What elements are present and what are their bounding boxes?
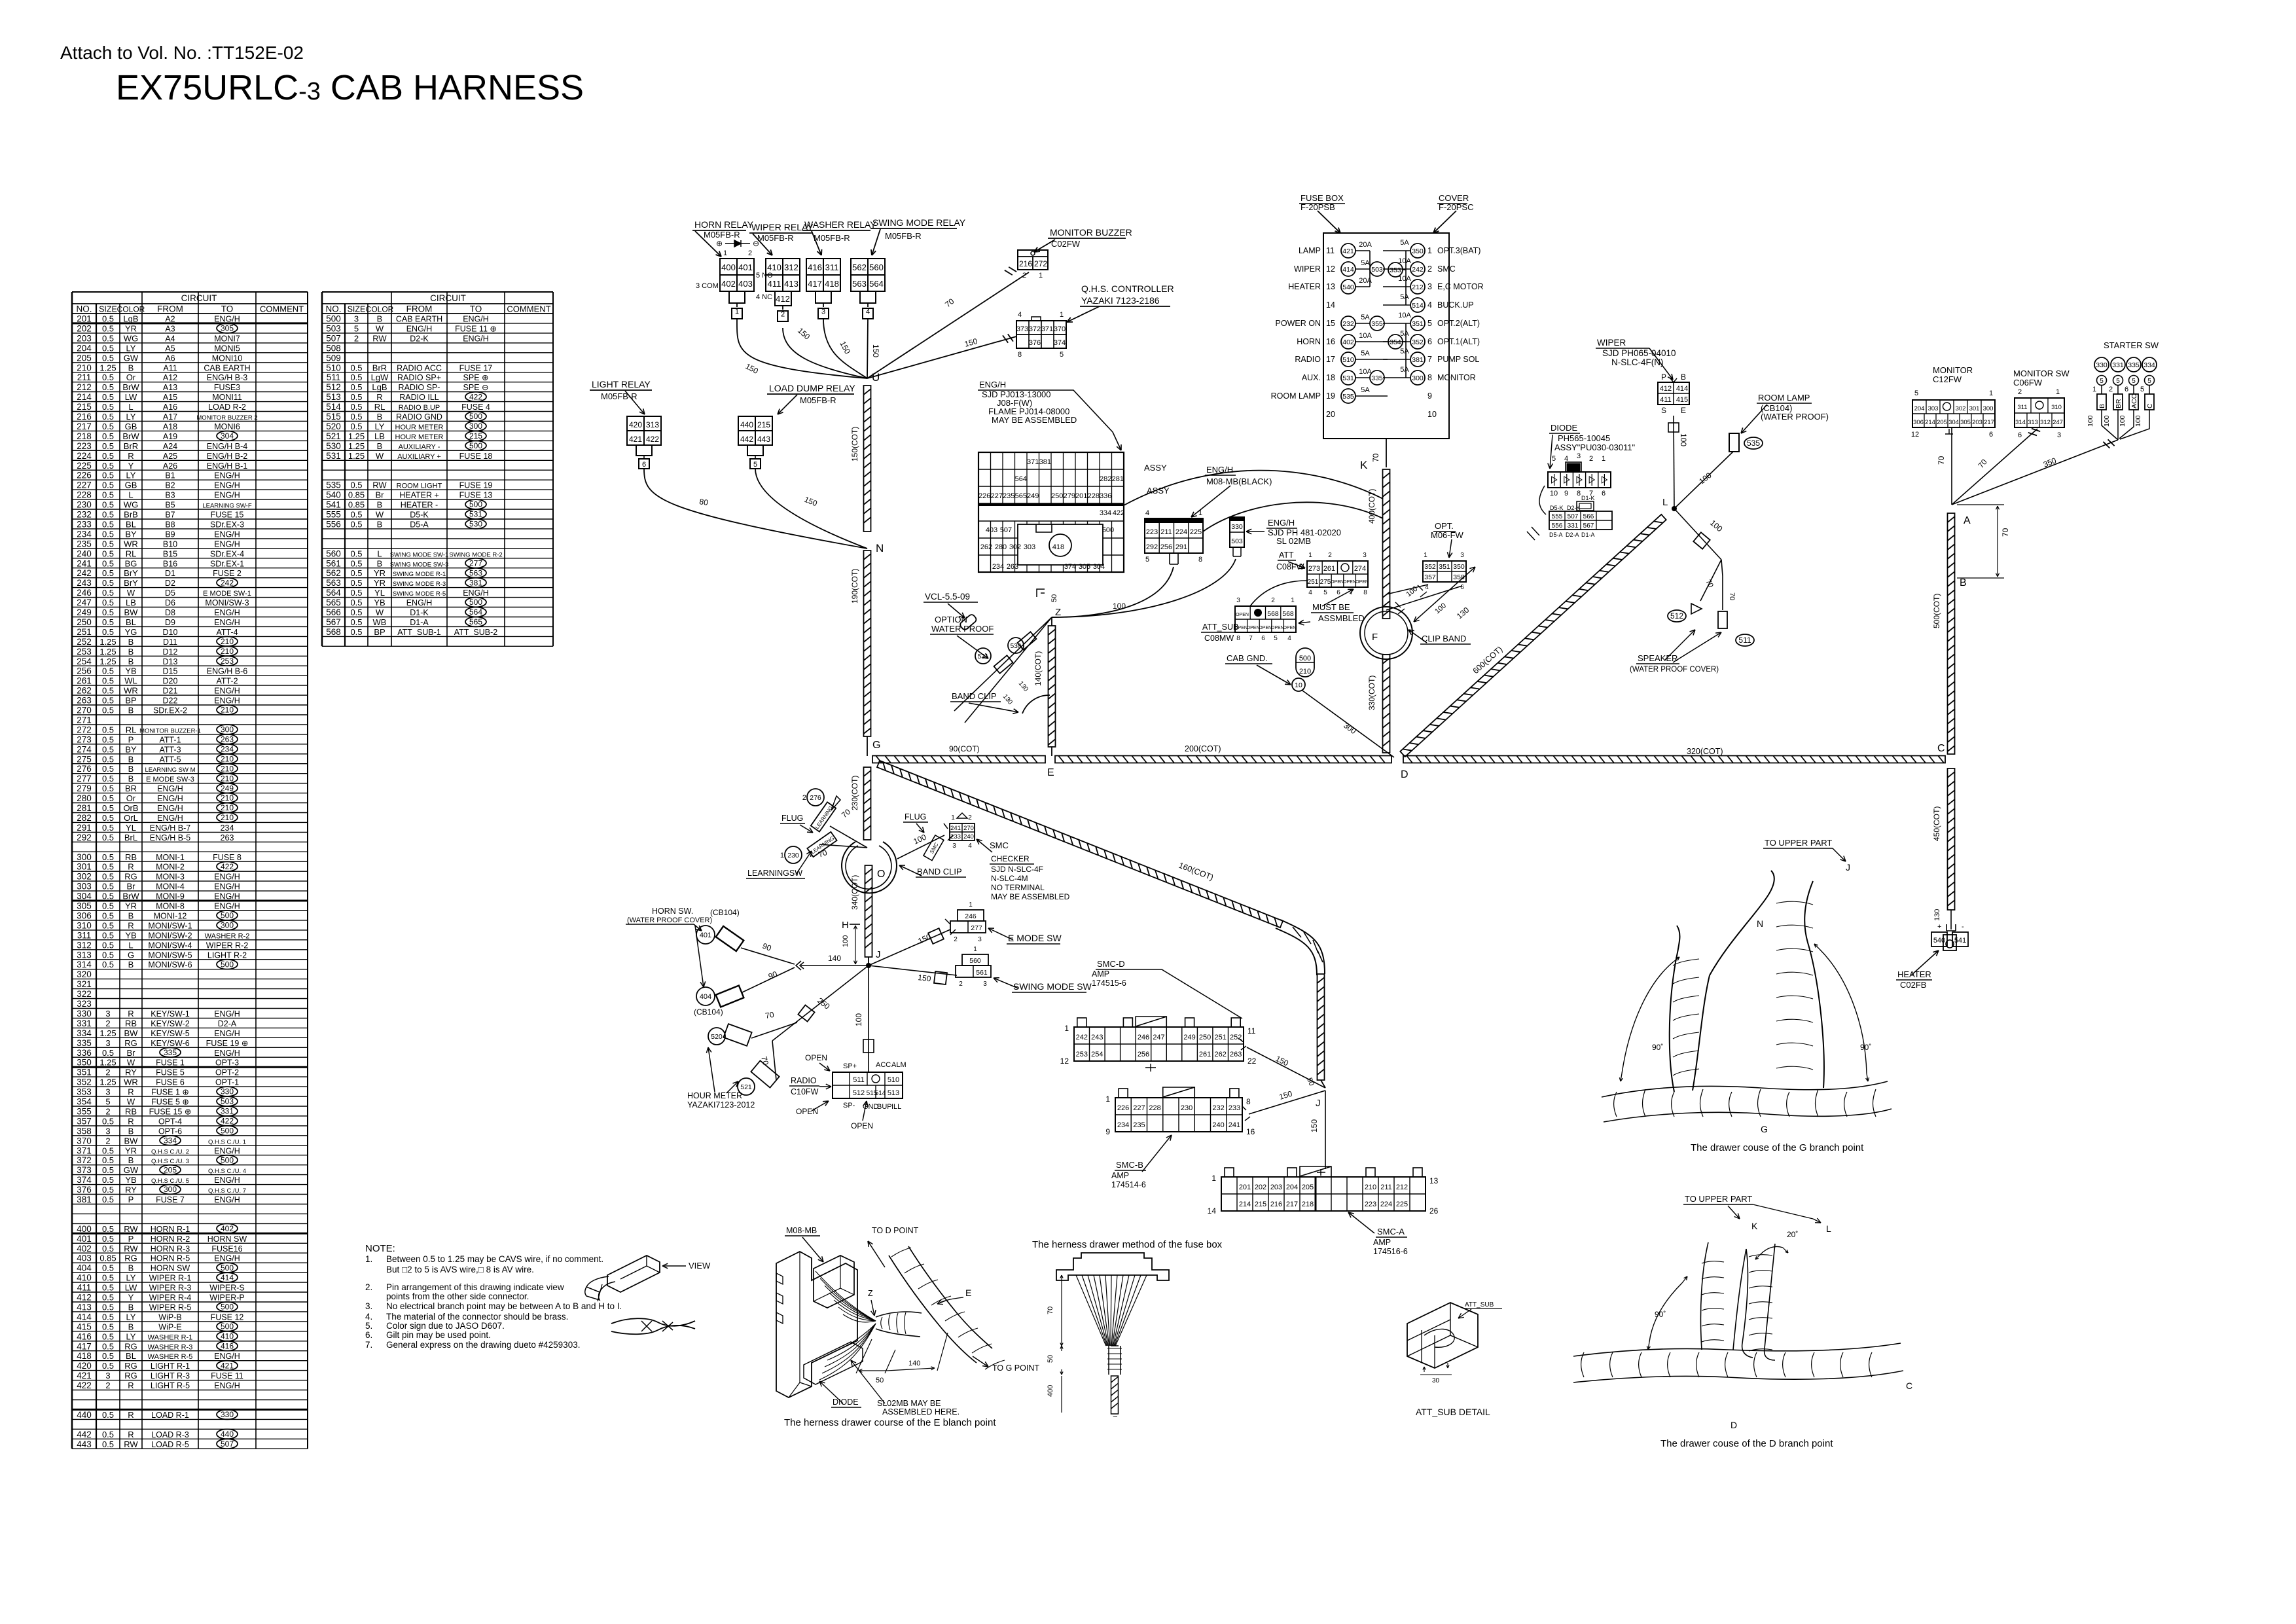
svg-text:2: 2 — [968, 814, 972, 821]
svg-text:C10FW: C10FW — [791, 1087, 819, 1096]
svg-text:WR: WR — [124, 539, 138, 549]
svg-text:ENG/H B-4: ENG/H B-4 — [207, 442, 248, 451]
svg-text:230: 230 — [77, 500, 92, 510]
svg-text:D6: D6 — [165, 598, 175, 607]
svg-text:263: 263 — [221, 735, 234, 744]
svg-text:503: 503 — [221, 1097, 234, 1106]
svg-text:LY: LY — [126, 471, 136, 480]
svg-text:ENG/H: ENG/H — [214, 892, 240, 901]
svg-text:YAZAKI7123-2012: YAZAKI7123-2012 — [687, 1100, 755, 1110]
svg-text:242: 242 — [77, 568, 92, 578]
svg-text:520: 520 — [711, 1033, 723, 1041]
svg-text:331: 331 — [221, 1107, 234, 1116]
svg-text:355: 355 — [1371, 320, 1383, 328]
svg-text:302: 302 — [1956, 405, 1966, 412]
svg-text:N: N — [876, 542, 884, 554]
svg-text:RB: RB — [125, 852, 137, 862]
svg-text:271: 271 — [77, 715, 92, 725]
svg-text:FUSE 13: FUSE 13 — [459, 491, 493, 500]
svg-text:421: 421 — [629, 435, 642, 444]
svg-text:MONITOR BUZZER 2: MONITOR BUZZER 2 — [196, 414, 257, 422]
svg-text:WiP-E: WiP-E — [158, 1322, 181, 1331]
svg-text:402: 402 — [721, 279, 736, 289]
svg-text:J: J — [876, 949, 881, 960]
svg-text:RADIO SP-: RADIO SP- — [399, 383, 440, 392]
svg-text:J: J — [1316, 1098, 1321, 1109]
svg-text:D15: D15 — [163, 667, 178, 676]
svg-text:400: 400 — [1047, 1385, 1054, 1397]
svg-text:RW: RW — [124, 1439, 138, 1449]
svg-text:281: 281 — [77, 803, 92, 813]
svg-text:WATER PROOF: WATER PROOF — [931, 624, 994, 634]
svg-text:253: 253 — [221, 657, 234, 666]
svg-text:564: 564 — [326, 588, 341, 598]
svg-text:K: K — [1751, 1221, 1758, 1231]
svg-text:5: 5 — [354, 323, 359, 333]
svg-text:B16: B16 — [163, 559, 177, 568]
svg-text:0.5: 0.5 — [350, 402, 362, 412]
svg-text:R: R — [128, 451, 134, 461]
svg-text:568: 568 — [326, 627, 341, 637]
svg-text:0.5: 0.5 — [350, 363, 362, 372]
svg-text:22: 22 — [1247, 1056, 1257, 1066]
svg-text:LIGHT R-1: LIGHT R-1 — [151, 1362, 190, 1371]
svg-text:LEARNINGSW: LEARNINGSW — [747, 869, 802, 878]
svg-text:100: 100 — [2087, 415, 2094, 427]
svg-text:SWING MODE R-2: SWING MODE R-2 — [449, 551, 502, 558]
svg-text:0.5: 0.5 — [102, 461, 114, 471]
svg-text:ENG/H: ENG/H — [463, 315, 489, 324]
svg-text:374: 374 — [1054, 339, 1066, 347]
svg-text:323: 323 — [77, 999, 92, 1009]
svg-text:1.25: 1.25 — [99, 647, 116, 657]
svg-text:0.5: 0.5 — [102, 882, 114, 892]
svg-text:3: 3 — [354, 314, 359, 324]
svg-text:205: 205 — [1937, 419, 1947, 426]
svg-text:410: 410 — [767, 262, 781, 272]
svg-text:G: G — [872, 740, 880, 751]
svg-text:440: 440 — [221, 1430, 234, 1439]
svg-text:9: 9 — [1105, 1127, 1110, 1136]
svg-text:507: 507 — [1568, 513, 1579, 520]
svg-text:8: 8 — [1427, 373, 1432, 382]
svg-text:2.: 2. — [365, 1282, 372, 1292]
svg-text:A15: A15 — [163, 393, 177, 402]
svg-text:371: 371 — [77, 1146, 92, 1155]
svg-text:242: 242 — [1412, 266, 1424, 274]
svg-text:214: 214 — [1925, 419, 1935, 426]
svg-text:C08MW: C08MW — [1204, 634, 1234, 643]
svg-text:500: 500 — [221, 911, 234, 920]
svg-text:200(COT): 200(COT) — [1185, 744, 1221, 753]
svg-text:420: 420 — [77, 1361, 92, 1371]
svg-text:MONI10: MONI10 — [212, 353, 243, 363]
svg-text:0.5: 0.5 — [102, 734, 114, 744]
svg-text:2: 2 — [105, 1380, 110, 1390]
svg-text:500: 500 — [469, 412, 482, 421]
svg-text:C08FW: C08FW — [1276, 562, 1304, 571]
svg-text:0.5: 0.5 — [350, 392, 362, 402]
svg-text:FUSE 2: FUSE 2 — [213, 569, 242, 578]
svg-text:ENG/H: ENG/H — [214, 1049, 240, 1058]
svg-text:12: 12 — [1326, 264, 1335, 274]
svg-text:ATT-1: ATT-1 — [159, 735, 181, 744]
svg-text:313: 313 — [2028, 419, 2038, 426]
svg-text:274: 274 — [77, 744, 92, 754]
svg-text:(CB104): (CB104) — [694, 1007, 723, 1017]
svg-text:228: 228 — [77, 490, 92, 500]
svg-text:FUSE BOX: FUSE BOX — [1300, 193, 1344, 203]
svg-text:535: 535 — [1747, 439, 1760, 448]
svg-text:SP+: SP+ — [843, 1062, 857, 1070]
svg-text:OPT-6: OPT-6 — [158, 1127, 182, 1136]
svg-text:WR: WR — [124, 1077, 138, 1087]
svg-text:FUSE 1 ⊕: FUSE 1 ⊕ — [151, 1088, 189, 1097]
svg-text:Q.H.S C./U. 7: Q.H.S C./U. 7 — [208, 1187, 246, 1195]
svg-text:251: 251 — [77, 627, 92, 637]
svg-text:YG: YG — [125, 627, 137, 637]
svg-text:414: 414 — [1676, 385, 1688, 393]
svg-text:D13: D13 — [163, 657, 178, 666]
svg-text:376: 376 — [77, 1185, 92, 1195]
svg-text:254: 254 — [1091, 1051, 1103, 1058]
svg-text:B10: B10 — [163, 539, 177, 549]
svg-text:HORN R-1: HORN R-1 — [151, 1225, 190, 1234]
svg-text:RW: RW — [124, 1224, 138, 1234]
svg-text:SDr.EX-3: SDr.EX-3 — [210, 520, 244, 530]
svg-text:1: 1 — [1105, 1094, 1110, 1104]
svg-text:330: 330 — [77, 1009, 92, 1019]
svg-text:509: 509 — [326, 353, 341, 363]
svg-text:ENG/H: ENG/H — [214, 530, 240, 539]
svg-text:0.85: 0.85 — [348, 500, 365, 510]
svg-text:2: 2 — [105, 1107, 110, 1117]
svg-text:0.5: 0.5 — [102, 549, 114, 558]
svg-text:0.5: 0.5 — [102, 588, 114, 598]
svg-text:350: 350 — [1453, 563, 1465, 571]
svg-text:LOAD R-5: LOAD R-5 — [151, 1440, 189, 1449]
svg-text:305: 305 — [77, 901, 92, 911]
svg-text:0.5: 0.5 — [102, 520, 114, 530]
svg-text:312: 312 — [784, 262, 798, 272]
svg-text:417: 417 — [808, 279, 822, 289]
svg-text:100: 100 — [1113, 602, 1126, 611]
svg-text:280: 280 — [77, 793, 92, 803]
svg-text:234: 234 — [77, 529, 92, 539]
svg-text:5A: 5A — [1400, 348, 1409, 355]
svg-text:247: 247 — [2053, 419, 2063, 426]
svg-text:WR: WR — [124, 686, 138, 696]
svg-text:E MODE SW-3: E MODE SW-3 — [146, 776, 194, 784]
svg-text:224: 224 — [1380, 1200, 1392, 1208]
svg-text:RG: RG — [124, 1371, 137, 1380]
svg-text:ENG/H B-7: ENG/H B-7 — [150, 823, 191, 833]
svg-text:3: 3 — [1460, 552, 1464, 559]
svg-text:203: 203 — [1270, 1183, 1282, 1191]
svg-text:70: 70 — [1728, 592, 1736, 600]
svg-text:R: R — [376, 392, 382, 402]
svg-text:240: 240 — [963, 833, 974, 840]
svg-text:564: 564 — [869, 279, 884, 289]
svg-text:211: 211 — [1380, 1183, 1392, 1191]
svg-text:D: D — [1401, 769, 1408, 780]
svg-text:250: 250 — [1199, 1034, 1211, 1041]
svg-text:SMC-A: SMC-A — [1377, 1227, 1405, 1236]
svg-text:70: 70 — [2001, 528, 2010, 537]
svg-text:4: 4 — [1427, 300, 1432, 310]
svg-text:1.25: 1.25 — [99, 363, 116, 372]
svg-text:STARTER SW: STARTER SW — [2104, 340, 2159, 350]
svg-text:ENG/H: ENG/H — [214, 1146, 240, 1155]
svg-text:BY: BY — [125, 529, 137, 539]
svg-text:ENG/H: ENG/H — [157, 794, 183, 803]
svg-text:403: 403 — [986, 526, 997, 534]
svg-text:B: B — [377, 500, 383, 510]
svg-text:0.5: 0.5 — [102, 911, 114, 921]
svg-text:50: 50 — [876, 1377, 884, 1384]
svg-text:0.5: 0.5 — [102, 568, 114, 578]
svg-text:218: 218 — [1302, 1200, 1314, 1208]
svg-text:10: 10 — [1550, 490, 1558, 497]
svg-text:E: E — [965, 1288, 971, 1298]
svg-text:LY: LY — [126, 1312, 136, 1322]
svg-text:RADIO: RADIO — [1295, 355, 1321, 364]
svg-text:D5-A: D5-A — [410, 520, 429, 530]
svg-text:566: 566 — [326, 607, 341, 617]
svg-text:COMMENT: COMMENT — [507, 304, 550, 314]
svg-text:2: 2 — [748, 249, 752, 257]
svg-text:D1-A: D1-A — [1581, 532, 1595, 538]
svg-text:N: N — [1757, 918, 1763, 929]
svg-text:A2: A2 — [165, 315, 175, 324]
svg-text:0.5: 0.5 — [102, 1048, 114, 1058]
svg-text:B: B — [128, 647, 134, 657]
svg-text:305: 305 — [1079, 563, 1090, 571]
svg-text:4: 4 — [1018, 311, 1022, 319]
svg-text:8: 8 — [1577, 490, 1581, 497]
svg-text:D1-K: D1-K — [410, 608, 429, 617]
svg-text:0.5: 0.5 — [102, 833, 114, 842]
svg-text:223: 223 — [1146, 528, 1158, 536]
svg-text:4: 4 — [866, 308, 870, 316]
svg-text:ENG/H: ENG/H — [214, 608, 240, 617]
svg-text:HORN SW: HORN SW — [207, 1235, 247, 1244]
svg-text:RG: RG — [124, 1361, 137, 1371]
svg-text:3: 3 — [821, 308, 825, 316]
svg-text:0.5: 0.5 — [102, 764, 114, 774]
svg-text:COVER: COVER — [1439, 193, 1469, 203]
svg-text:3.: 3. — [365, 1301, 372, 1311]
svg-text:5A: 5A — [1361, 259, 1370, 267]
svg-text:Pin arrangement of this drawin: Pin arrangement of this drawing indicate… — [386, 1282, 564, 1292]
svg-text:ENG/H: ENG/H — [157, 814, 183, 823]
svg-text:216: 216 — [1270, 1200, 1282, 1208]
svg-text:YB: YB — [125, 666, 136, 676]
svg-text:531: 531 — [469, 510, 482, 519]
svg-text:421: 421 — [77, 1371, 92, 1380]
svg-text:277: 277 — [469, 558, 482, 568]
svg-text:SJD N-SLC-4F: SJD N-SLC-4F — [991, 865, 1043, 874]
svg-text:MONI-2: MONI-2 — [156, 863, 185, 872]
svg-text:2: 2 — [354, 333, 359, 343]
svg-text:376: 376 — [1029, 339, 1041, 347]
svg-text:5: 5 — [1914, 389, 1918, 397]
svg-text:ENG/H: ENG/H — [214, 618, 240, 627]
svg-text:MUST BE: MUST BE — [1312, 602, 1350, 612]
svg-text:M06-FW: M06-FW — [1431, 530, 1464, 540]
svg-text:6: 6 — [1989, 431, 1993, 439]
svg-text:B: B — [128, 657, 134, 666]
svg-text:NO.: NO. — [325, 304, 341, 314]
svg-text:HORN SW: HORN SW — [151, 1264, 190, 1273]
svg-text:252: 252 — [77, 637, 92, 647]
svg-text:234: 234 — [992, 563, 1004, 571]
svg-text:LEARNING SW M: LEARNING SW M — [145, 767, 195, 774]
svg-text:YL: YL — [374, 588, 385, 598]
svg-text:L: L — [128, 940, 133, 950]
svg-text:330: 330 — [1231, 523, 1243, 531]
svg-text:210: 210 — [221, 813, 234, 822]
svg-text:0.5: 0.5 — [102, 392, 114, 402]
svg-text:NO.: NO. — [76, 304, 92, 314]
svg-text:The herness drawer course of t: The herness drawer course of the E blanc… — [784, 1417, 996, 1428]
svg-text:3 COM: 3 COM — [696, 282, 719, 290]
svg-text:276: 276 — [77, 764, 92, 774]
svg-text:292: 292 — [1146, 543, 1158, 551]
svg-text:226: 226 — [978, 492, 990, 500]
svg-text:563: 563 — [852, 279, 867, 289]
svg-text:227: 227 — [77, 480, 92, 490]
svg-text:OPEN: OPEN — [1259, 626, 1272, 630]
svg-text:10: 10 — [1295, 681, 1302, 689]
svg-text:565: 565 — [326, 598, 341, 607]
svg-text:ENG/H: ENG/H — [214, 1381, 240, 1390]
svg-text:HEATER: HEATER — [1897, 969, 1931, 979]
svg-text:ASSY"PU030-03011": ASSY"PU030-03011" — [1554, 442, 1636, 452]
svg-text:L: L — [377, 549, 382, 558]
svg-text:BR: BR — [125, 784, 137, 793]
svg-text:540: 540 — [1342, 283, 1354, 291]
svg-text:3: 3 — [978, 936, 982, 943]
svg-text:374: 374 — [1064, 563, 1076, 571]
svg-text:253: 253 — [77, 647, 92, 657]
svg-text:FUSE3: FUSE3 — [214, 383, 240, 392]
svg-text:403: 403 — [77, 1254, 92, 1263]
svg-text:0.5: 0.5 — [102, 1439, 114, 1449]
svg-text:7.: 7. — [365, 1340, 372, 1350]
svg-text:371: 371 — [1041, 325, 1053, 333]
svg-text:(WATER PROOF COVER): (WATER PROOF COVER) — [1630, 666, 1719, 674]
svg-text:(WATER PROOF COVER): (WATER PROOF COVER) — [627, 916, 712, 924]
svg-text:HORN R-5: HORN R-5 — [151, 1254, 190, 1263]
svg-text:1.: 1. — [365, 1254, 372, 1264]
svg-text:302: 302 — [1009, 543, 1021, 551]
svg-text:371: 371 — [1027, 458, 1039, 466]
svg-text:0.5: 0.5 — [102, 960, 114, 969]
svg-text:BrW: BrW — [122, 382, 139, 392]
svg-text:W: W — [376, 451, 384, 461]
svg-text:OPEN: OPEN — [1247, 626, 1260, 630]
svg-text:413: 413 — [77, 1303, 92, 1312]
svg-text:330(COT): 330(COT) — [1367, 676, 1376, 710]
svg-text:300: 300 — [1983, 405, 1994, 412]
svg-text:FUSE 4: FUSE 4 — [461, 403, 490, 412]
svg-text:SIZE: SIZE — [99, 305, 117, 314]
svg-text:FUSE 8: FUSE 8 — [213, 853, 242, 862]
svg-text:210: 210 — [77, 363, 92, 372]
svg-text:RG: RG — [124, 1038, 137, 1048]
svg-text:211: 211 — [1160, 528, 1172, 536]
svg-text:150: 150 — [918, 973, 932, 983]
svg-text:226: 226 — [1117, 1104, 1129, 1112]
svg-text:374: 374 — [77, 1175, 92, 1185]
svg-text:2: 2 — [2018, 388, 2022, 396]
svg-text:HORN R-2: HORN R-2 — [151, 1235, 190, 1244]
svg-text:EX75URLC-3 CAB HARNESS: EX75URLC-3 CAB HARNESS — [116, 68, 584, 107]
svg-text:MONI-8: MONI-8 — [156, 902, 185, 911]
svg-text:8: 8 — [1018, 351, 1022, 359]
svg-text:LgW: LgW — [371, 372, 389, 382]
svg-text:6.: 6. — [365, 1330, 372, 1340]
svg-text:DIODE: DIODE — [833, 1398, 859, 1407]
svg-text:General express on the drawing: General express on the drawing dueto #42… — [386, 1340, 580, 1350]
svg-text:0.5: 0.5 — [102, 823, 114, 833]
svg-text:MONI/SW-1: MONI/SW-1 — [148, 921, 192, 930]
svg-text:5A: 5A — [1400, 293, 1409, 301]
svg-text:MONITOR: MONITOR — [1933, 365, 1973, 375]
svg-text:BrR: BrR — [372, 363, 387, 372]
svg-text:0.5: 0.5 — [102, 920, 114, 930]
svg-text:L: L — [1662, 497, 1668, 508]
svg-text:411: 411 — [77, 1283, 92, 1293]
svg-text:422: 422 — [77, 1380, 92, 1390]
svg-text:256: 256 — [1160, 543, 1172, 551]
svg-text:249: 249 — [221, 784, 234, 793]
svg-text:9: 9 — [1427, 391, 1432, 401]
svg-text:204: 204 — [1286, 1183, 1298, 1191]
svg-text:B: B — [128, 774, 134, 784]
svg-text:372: 372 — [77, 1155, 92, 1165]
svg-text:500: 500 — [221, 1127, 234, 1136]
svg-text:5: 5 — [2100, 378, 2104, 385]
svg-text:0.5: 0.5 — [102, 402, 114, 412]
svg-text:TO D POINT: TO D POINT — [872, 1226, 919, 1235]
svg-text:TO: TO — [470, 304, 482, 314]
svg-text:513: 513 — [888, 1089, 899, 1097]
svg-text:562: 562 — [852, 262, 867, 272]
svg-text:GW: GW — [124, 1165, 139, 1175]
svg-text:CLIP BAND: CLIP BAND — [1422, 634, 1466, 643]
svg-text:500: 500 — [221, 1322, 234, 1331]
svg-text:0.5: 0.5 — [102, 500, 114, 510]
svg-text:201: 201 — [1075, 492, 1087, 500]
svg-text:No electrical branch point may: No electrical branch point may be betwee… — [386, 1301, 622, 1311]
svg-text:140: 140 — [908, 1360, 920, 1367]
svg-text:Br: Br — [127, 882, 136, 892]
svg-text:0.5: 0.5 — [102, 529, 114, 539]
svg-text:503: 503 — [1371, 266, 1383, 274]
svg-text:Y: Y — [128, 1293, 134, 1303]
svg-text:291: 291 — [77, 823, 92, 833]
svg-text:256: 256 — [1138, 1051, 1149, 1058]
svg-text:A16: A16 — [163, 403, 177, 412]
svg-text:212: 212 — [1396, 1183, 1408, 1191]
svg-text:2: 2 — [802, 794, 806, 802]
svg-text:214: 214 — [77, 392, 92, 402]
svg-text:334: 334 — [77, 1028, 92, 1038]
svg-text:17: 17 — [1326, 355, 1335, 364]
svg-text:500: 500 — [326, 314, 341, 324]
